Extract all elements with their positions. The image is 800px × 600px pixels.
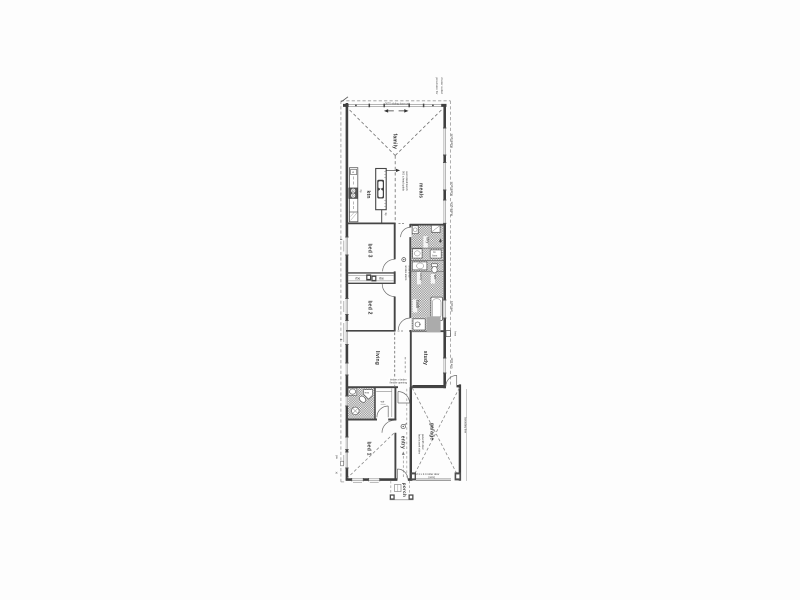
svg-text:meter outlet: meter outlet xyxy=(440,78,444,94)
svg-text:to as 3786: to as 3786 xyxy=(407,265,411,278)
svg-text:rbe: rbe xyxy=(379,277,384,281)
svg-text:living: living xyxy=(374,351,380,365)
svg-text:panel lift door: panel lift door xyxy=(421,434,425,450)
svg-text:entry: entry xyxy=(400,436,406,449)
svg-text:wc: wc xyxy=(433,275,437,280)
svg-text:hws: hws xyxy=(453,331,457,336)
svg-text:ktn: ktn xyxy=(365,191,371,199)
svg-text:1215 sliding: 1215 sliding xyxy=(450,202,454,217)
svg-text:ldry: ldry xyxy=(426,237,431,243)
svg-text:bath: bath xyxy=(415,300,420,309)
svg-text:ens: ens xyxy=(365,392,370,395)
svg-text:provision for: provision for xyxy=(435,78,439,95)
svg-text:study: study xyxy=(422,351,428,365)
svg-text:900 o,head cpbds: 900 o,head cpbds xyxy=(402,171,405,192)
svg-text:bed 2: bed 2 xyxy=(367,301,373,315)
svg-text:vanity: vanity xyxy=(419,273,423,281)
svg-text:over island bench: over island bench xyxy=(405,171,408,191)
svg-text:linen: linen xyxy=(432,254,438,257)
svg-text:wir: wir xyxy=(381,400,385,404)
svg-text:porch: porch xyxy=(402,483,407,497)
svg-text:meals: meals xyxy=(418,183,424,198)
svg-text:bed 3: bed 3 xyxy=(367,244,373,258)
svg-text:1206 awn: 1206 awn xyxy=(450,301,453,312)
svg-text:1218 sliding: 1218 sliding xyxy=(450,134,454,149)
svg-text:flexible opening: flexible opening xyxy=(390,382,408,385)
svg-text:rbe: rbe xyxy=(355,277,360,281)
svg-text:1215 awn: 1215 awn xyxy=(450,358,453,369)
svg-text:family: family xyxy=(391,134,397,150)
svg-text:1218 sliding: 1218 sliding xyxy=(450,182,454,197)
svg-text:bed 1: bed 1 xyxy=(365,442,371,456)
svg-text:w: w xyxy=(352,171,354,174)
svg-text:boundary line: boundary line xyxy=(463,418,467,434)
svg-text:garage: garage xyxy=(429,423,435,441)
svg-text:3070 sliding door unit: 3070 sliding door unit xyxy=(385,102,410,106)
svg-text:face b,work sides: face b,work sides xyxy=(418,434,422,455)
